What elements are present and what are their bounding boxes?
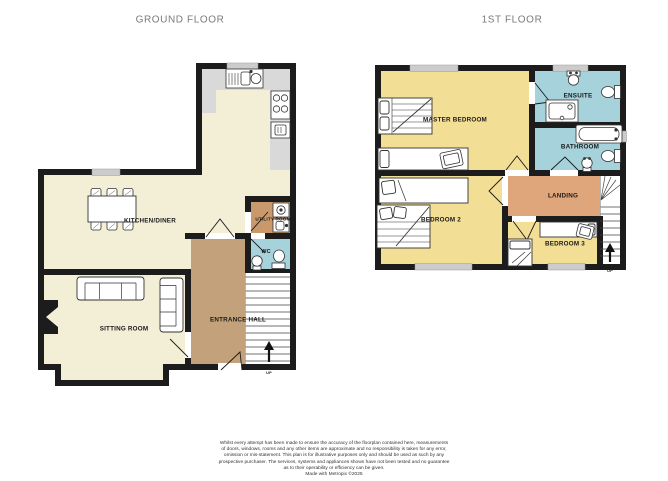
disclaimer-credit: Made with Metropix ©2025 — [124, 472, 544, 478]
sofa-vertical — [160, 278, 183, 332]
oven-icon — [271, 122, 290, 138]
label-entrance-hall: ENTRANCE HALL — [210, 317, 266, 324]
label-kitchen-diner: KITCHEN/DINER — [124, 218, 176, 225]
bathroom-basin-icon — [582, 158, 592, 172]
single-bed-bedroom2-icon — [379, 178, 468, 203]
hob-icon — [271, 91, 290, 119]
bath-icon — [576, 125, 622, 143]
label-up-first: UP — [607, 269, 613, 273]
sofa-horizontal — [77, 277, 144, 300]
label-bedroom-2: BEDROOM 2 — [421, 217, 461, 224]
window — [548, 264, 585, 271]
window — [92, 169, 120, 176]
single-bed-vertical-icon — [508, 239, 532, 266]
ensuite-basin-icon — [567, 71, 580, 85]
label-landing: LANDING — [548, 193, 578, 200]
wc-toilet-icon — [272, 250, 285, 269]
bathroom-toilet-icon — [602, 150, 621, 163]
label-utility-room: UTILITY ROOM — [255, 217, 290, 222]
label-bathroom: BATHROOM — [561, 144, 599, 151]
room-entrance-hall-floor — [191, 239, 245, 364]
label-wc: WC — [261, 249, 271, 255]
label-sitting-room: SITTING ROOM — [100, 326, 149, 333]
label-up-ground: UP — [266, 371, 272, 375]
wc-basin-icon — [252, 256, 262, 270]
label-bedroom-3: BEDROOM 3 — [545, 241, 585, 248]
disclaimer-text: Whilst every attempt has been made to en… — [124, 441, 544, 478]
first-floor-title: 1ST FLOOR — [482, 15, 543, 26]
ensuite-toilet-icon — [602, 86, 621, 99]
washing-machine-icon — [273, 203, 289, 217]
shower-tray-icon — [546, 100, 578, 122]
sink-icon — [226, 69, 263, 88]
window — [553, 65, 588, 72]
window — [415, 264, 472, 271]
window — [410, 65, 458, 72]
label-ensuite: ENSUITE — [564, 93, 593, 100]
double-bed-bedroom2-icon — [377, 205, 430, 248]
window — [227, 63, 258, 70]
floorplan-page: GROUND FLOOR 1ST FLOOR KITCHEN/DINER UTI… — [0, 0, 668, 481]
label-master-bedroom: MASTER BEDROOM — [423, 117, 487, 124]
ground-floor-title: GROUND FLOOR — [136, 15, 225, 26]
